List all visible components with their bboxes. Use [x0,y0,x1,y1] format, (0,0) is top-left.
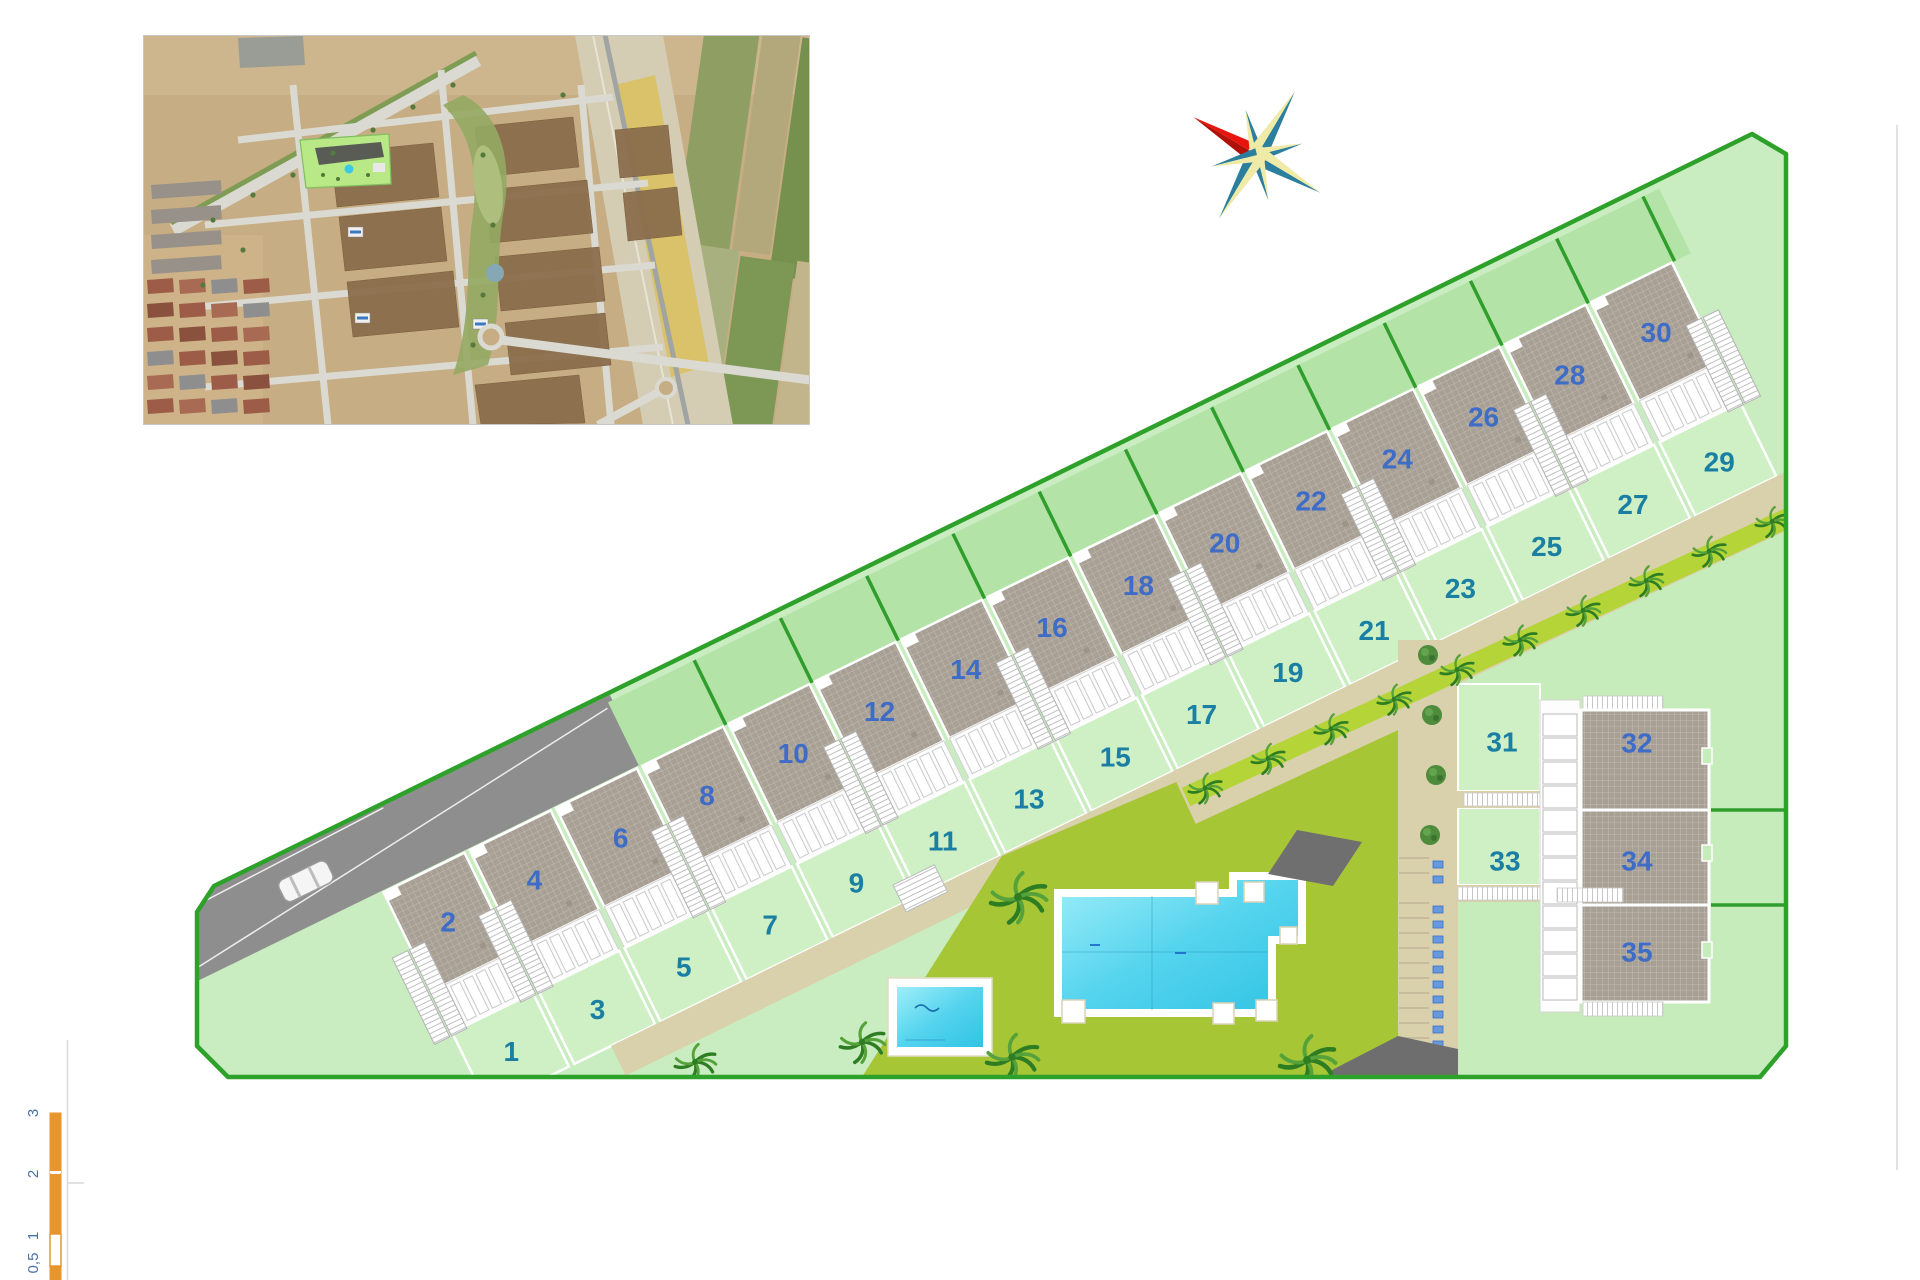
parking-marker [1433,951,1443,958]
aerial-photo-inset [143,14,869,465]
plot-number-label: 27 [1617,489,1648,520]
terrace-box [1543,786,1577,808]
plot-number-label: 22 [1295,486,1326,517]
plot-number-label: 28 [1554,359,1585,390]
plot-number-label: 29 [1704,447,1735,478]
plot-number-label: 33 [1489,846,1520,877]
plot-number-label: 30 [1641,317,1672,348]
scale-label: 1 [25,1232,42,1240]
scale-label: 0,5 [25,1253,42,1274]
plot-number-label: 4 [527,864,543,895]
scale-bar: 3210,5 [25,1109,61,1280]
plot-number-label: 7 [762,910,778,941]
kids-pool [888,978,992,1056]
scale-label: 3 [25,1109,42,1117]
plot-number-label: 10 [778,738,809,769]
plot-number-label: 34 [1621,846,1653,877]
plot-number-label: 1 [503,1036,519,1067]
plot-number-label: 24 [1382,444,1414,475]
roundabout [480,326,502,348]
terrace-box [1543,834,1577,856]
plot-number-label: 20 [1209,528,1240,559]
parking-marker [1433,936,1443,943]
development-site-highlight [300,134,391,188]
plot-number-label: 8 [699,780,715,811]
plot-number-label: 25 [1531,531,1562,562]
terrace-box [1543,906,1577,928]
plot-number-label: 32 [1621,728,1652,759]
terrace-box [1543,762,1577,784]
plot-number-label: 15 [1100,741,1131,772]
plot-number-label: 3 [590,994,606,1025]
plot-number-label: 21 [1359,615,1390,646]
parking-marker [1433,1026,1443,1033]
parking-marker [1433,861,1443,868]
page: 2468101214161820222426283013579111315171… [0,0,1920,1280]
terrace-box [1543,738,1577,760]
main-pool [1058,876,1302,1024]
scale-label: 2 [25,1170,42,1178]
terrace-box [1543,858,1577,880]
terrace-box [1543,714,1577,736]
parking-marker [1433,876,1443,883]
compass-rose-icon [1193,91,1320,218]
plot-number-label: 16 [1037,612,1068,643]
roundabout [657,379,675,397]
parking-marker [1433,921,1443,928]
plot-number-label: 14 [950,654,982,685]
parking-marker [1433,966,1443,973]
terrace-box [1543,978,1577,1000]
plot-number-label: 9 [849,868,865,899]
plot-number-label: 17 [1186,699,1217,730]
plot-number-label: 11 [928,825,958,856]
plot-number-label: 26 [1468,401,1499,432]
terrace-box [1543,810,1577,832]
parking-marker [1433,906,1443,913]
plot-number-label: 19 [1272,657,1303,688]
plot-number-label: 18 [1123,570,1154,601]
plot-number-label: 23 [1445,573,1476,604]
plot-number-label: 2 [440,906,456,937]
parking-marker [1433,996,1443,1003]
building-roof [1581,710,1709,810]
plot-number-label: 6 [613,822,629,853]
plot-number-label: 12 [864,696,895,727]
plot-number-label: 5 [676,952,692,983]
plot-number-label: 31 [1486,727,1517,758]
parking-marker [1433,981,1443,988]
terrace-box [1543,930,1577,952]
terrace-box [1543,954,1577,976]
parking-marker [1433,1011,1443,1018]
site-plan-drawing: 2468101214161820222426283013579111315171… [0,0,1920,1280]
plot-number-label: 35 [1621,937,1652,968]
plot-number-label: 13 [1013,783,1044,814]
